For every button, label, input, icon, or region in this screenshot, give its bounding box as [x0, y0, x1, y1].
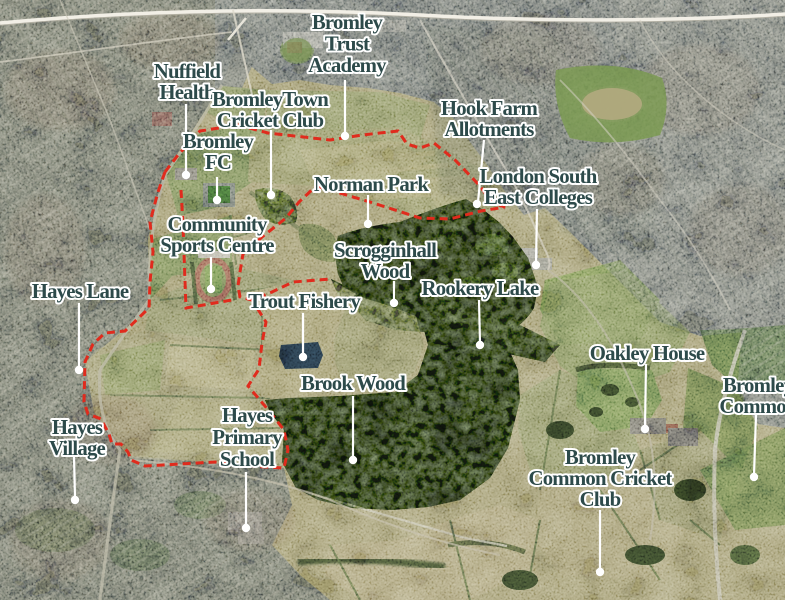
svg-text:School: School	[220, 448, 275, 471]
svg-text:Oakley House: Oakley House	[590, 342, 705, 365]
svg-text:Community: Community	[167, 213, 268, 236]
svg-text:Trout Fishery: Trout Fishery	[248, 290, 361, 313]
svg-text:Scrogginhall: Scrogginhall	[334, 239, 437, 262]
svg-text:Health: Health	[159, 81, 216, 104]
svg-text:Primary: Primary	[212, 426, 283, 449]
svg-text:Wood: Wood	[361, 260, 411, 283]
svg-text:Cricket Club: Cricket Club	[217, 109, 324, 132]
svg-text:Hayes Lane: Hayes Lane	[32, 280, 129, 303]
svg-text:Village: Village	[49, 437, 106, 460]
svg-text:Nuffield: Nuffield	[154, 60, 222, 83]
svg-text:Bromley: Bromley	[183, 130, 255, 153]
svg-text:Trust: Trust	[325, 33, 370, 56]
svg-text:Norman Park: Norman Park	[314, 173, 429, 196]
svg-text:Sports Centre: Sports Centre	[160, 234, 274, 257]
svg-text:East Colleges: East Colleges	[484, 186, 593, 209]
svg-text:Bromley: Bromley	[312, 11, 384, 34]
svg-text:Bromley: Bromley	[565, 446, 637, 469]
svg-text:Hayes: Hayes	[222, 404, 273, 427]
svg-text:Common Cricket: Common Cricket	[528, 467, 672, 490]
svg-text:London South: London South	[480, 165, 598, 188]
svg-text:Common: Common	[719, 395, 785, 418]
svg-text:Hook Farm: Hook Farm	[441, 97, 538, 120]
svg-text:FC: FC	[205, 151, 231, 174]
svg-text:Rookery Lake: Rookery Lake	[422, 277, 539, 300]
svg-text:Brook Wood: Brook Wood	[301, 372, 406, 395]
svg-text:Allotments: Allotments	[444, 118, 534, 141]
svg-text:BromleyTown: BromleyTown	[212, 88, 329, 111]
svg-text:Hayes: Hayes	[52, 416, 103, 439]
svg-text:Academy: Academy	[308, 54, 387, 77]
svg-text:Bromley: Bromley	[723, 374, 785, 397]
svg-text:Club: Club	[580, 488, 621, 511]
